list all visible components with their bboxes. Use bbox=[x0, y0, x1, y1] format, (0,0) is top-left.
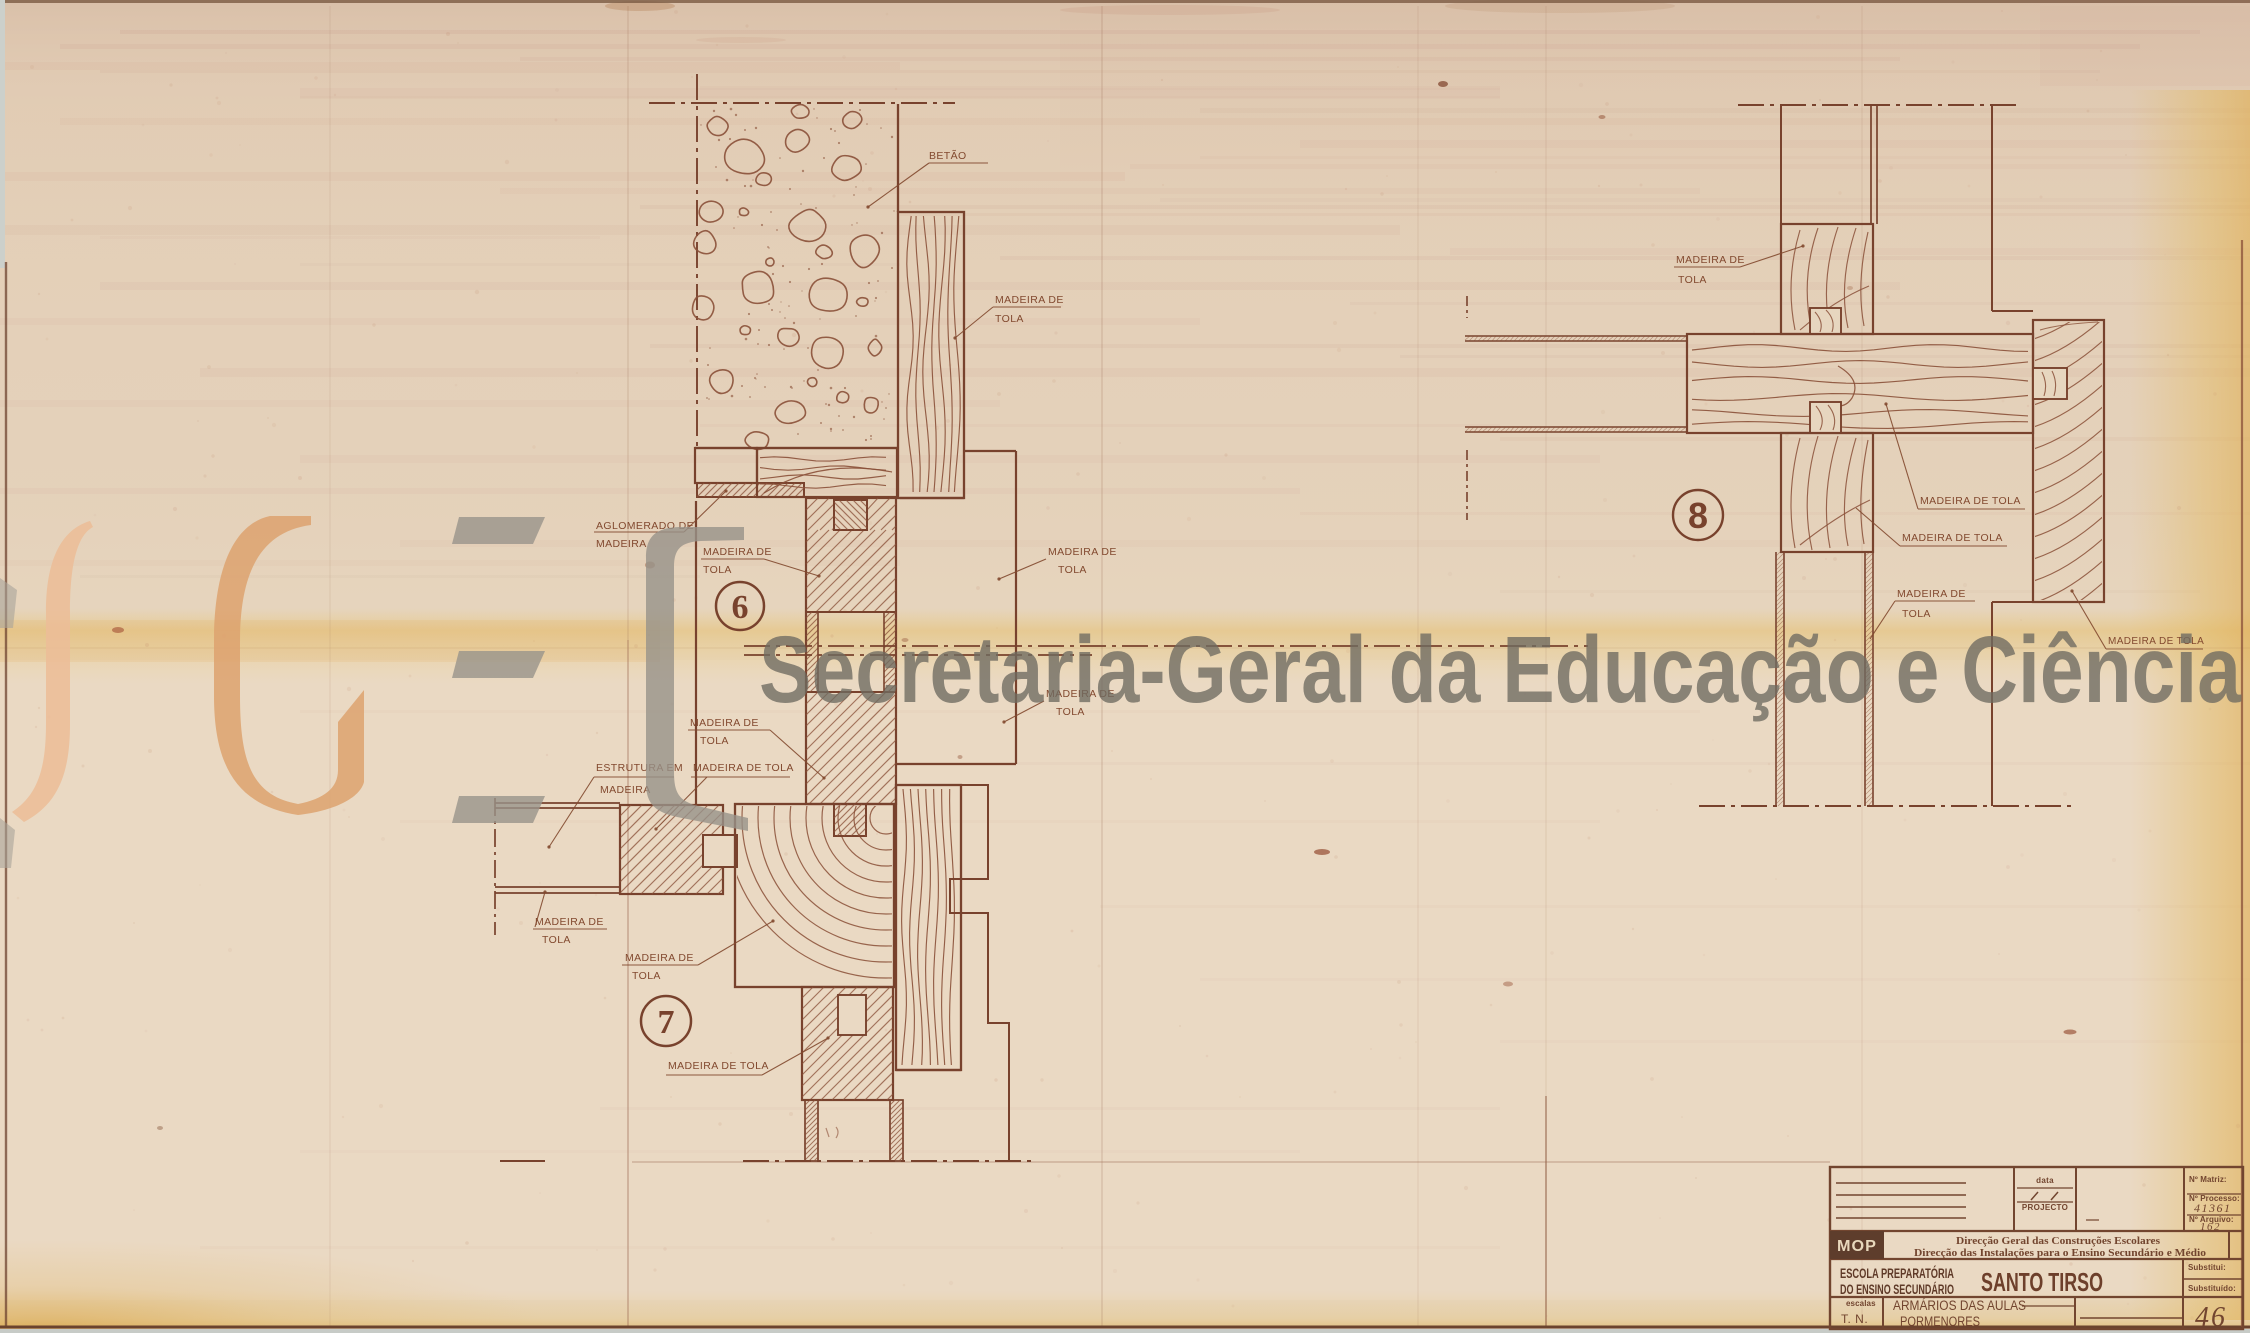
svg-text:Substituído:: Substituído: bbox=[2188, 1284, 2236, 1293]
svg-text:MADEIRA DE TOLA: MADEIRA DE TOLA bbox=[1902, 532, 2003, 544]
svg-text:TOLA: TOLA bbox=[700, 735, 729, 747]
svg-text:PORMENORES: PORMENORES bbox=[1900, 1314, 1980, 1329]
svg-text:DO ENSINO SECUNDÁRIO: DO ENSINO SECUNDÁRIO bbox=[1840, 1282, 1954, 1297]
svg-text:MADEIRA DE: MADEIRA DE bbox=[690, 717, 759, 729]
svg-text:MADEIRA DE TOLA: MADEIRA DE TOLA bbox=[668, 1060, 769, 1072]
svg-text:MADEIRA DE: MADEIRA DE bbox=[995, 294, 1064, 306]
svg-text:MADEIRA DE: MADEIRA DE bbox=[1897, 588, 1966, 600]
svg-text:TOLA: TOLA bbox=[632, 970, 661, 982]
svg-text:SANTO TIRSO: SANTO TIRSO bbox=[1981, 1267, 2103, 1297]
svg-text:MOP: MOP bbox=[1837, 1238, 1877, 1255]
svg-text:Direcção Geral das Construções: Direcção Geral das Construções Escolares bbox=[1956, 1235, 2161, 1247]
svg-text:MADEIRA DE: MADEIRA DE bbox=[1676, 254, 1745, 266]
svg-text:escalas: escalas bbox=[1846, 1299, 1876, 1308]
svg-text:46: 46 bbox=[2195, 1302, 2227, 1333]
svg-text:MADEIRA DE TOLA: MADEIRA DE TOLA bbox=[1920, 495, 2021, 507]
svg-text:Secretaria-Geral da Educação e: Secretaria-Geral da Educação e Ciência bbox=[759, 617, 2242, 723]
svg-text:MADEIRA DE: MADEIRA DE bbox=[535, 916, 604, 928]
svg-text:41361: 41361 bbox=[2194, 1201, 2232, 1215]
svg-text:TOLA: TOLA bbox=[703, 564, 732, 576]
svg-text:MADEIRA DE: MADEIRA DE bbox=[703, 546, 772, 558]
svg-text:TOLA: TOLA bbox=[995, 313, 1024, 325]
svg-text:TOLA: TOLA bbox=[1678, 274, 1707, 286]
svg-text:MADEIRA DE: MADEIRA DE bbox=[1048, 546, 1117, 558]
svg-text:PROJECTO: PROJECTO bbox=[2022, 1203, 2068, 1212]
svg-text:7: 7 bbox=[658, 1004, 675, 1041]
svg-text:ARMÁRIOS DAS AULAS: ARMÁRIOS DAS AULAS bbox=[1893, 1298, 2026, 1313]
svg-text:Direcção das Instalações para: Direcção das Instalações para o Ensino S… bbox=[1914, 1247, 2207, 1259]
svg-text:ESCOLA PREPARATÓRIA: ESCOLA PREPARATÓRIA bbox=[1840, 1266, 1954, 1281]
svg-text:MADEIRA: MADEIRA bbox=[596, 538, 647, 550]
svg-text:Nº Matriz:: Nº Matriz: bbox=[2189, 1175, 2227, 1184]
svg-text:Substitui:: Substitui: bbox=[2188, 1263, 2226, 1272]
svg-text:BETÃO: BETÃO bbox=[929, 149, 967, 162]
svg-text:162: 162 bbox=[2200, 1221, 2221, 1233]
svg-text:TOLA: TOLA bbox=[542, 934, 571, 946]
svg-text:TOLA: TOLA bbox=[1058, 564, 1087, 576]
svg-text:8: 8 bbox=[1688, 495, 1708, 536]
svg-text:MADEIRA DE TOLA: MADEIRA DE TOLA bbox=[693, 762, 794, 774]
svg-text:data: data bbox=[2036, 1176, 2054, 1185]
svg-text:MADEIRA DE: MADEIRA DE bbox=[625, 952, 694, 964]
svg-text:6: 6 bbox=[732, 589, 749, 626]
svg-text:T. N.: T. N. bbox=[1841, 1312, 1868, 1326]
svg-text:MADEIRA: MADEIRA bbox=[600, 784, 651, 796]
